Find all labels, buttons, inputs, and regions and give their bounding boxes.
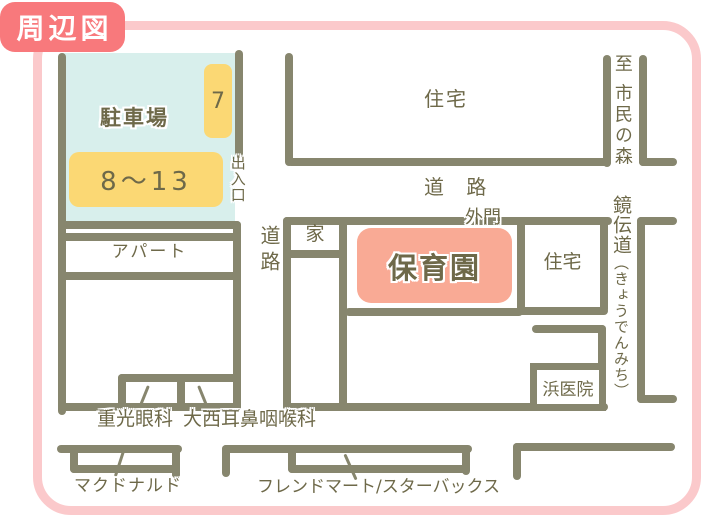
parking-spots-8-13: 8～13 <box>69 152 223 207</box>
road-line <box>517 307 608 315</box>
building-line <box>222 445 472 453</box>
road-line <box>637 395 677 403</box>
parking-label: 駐車場 <box>100 106 169 130</box>
parking-spot-7: 7 <box>204 64 232 138</box>
kyodenmichi-road-label: 鏡伝道（きょうでんみち） <box>610 195 630 399</box>
entrance-exit-label: 出入口 <box>229 155 245 203</box>
to-citizens-forest-label: 至 市民の森 <box>612 54 631 168</box>
road-line <box>285 53 293 166</box>
hama-clinic-label: 浜医院 <box>543 375 594 400</box>
road-line <box>345 308 523 316</box>
road-line <box>58 221 241 229</box>
apartment-label: アパート <box>58 243 241 263</box>
road-line <box>637 217 645 403</box>
building-line <box>118 374 237 382</box>
building-line <box>70 465 180 473</box>
housing-top-label: 住宅 <box>424 88 468 111</box>
neighborhood-map: 周辺図 7 8～13 駐車場 出入口 道路 住宅 道 路 <box>0 0 703 530</box>
road-line <box>532 325 606 333</box>
map-title-badge: 周辺図 <box>0 2 125 52</box>
kyodenmichi-kana: （きょうでんみち） <box>612 255 630 399</box>
road-line <box>235 50 243 158</box>
road-label-left: 道路 <box>258 225 279 277</box>
road-line <box>283 217 291 411</box>
building-line <box>283 250 347 258</box>
building-line <box>58 272 241 280</box>
building-line <box>288 465 470 473</box>
house-label: 家 <box>283 224 347 246</box>
nursery-school-label: 保育園 <box>388 245 481 287</box>
road-line <box>639 55 647 166</box>
road-line <box>603 55 611 167</box>
nursery-school-box: 保育園 <box>357 228 512 303</box>
ent-clinic-label: 大西耳鼻咽喉科 <box>183 409 316 431</box>
road-line <box>513 443 675 451</box>
building-line <box>57 445 182 453</box>
road-line <box>639 158 677 166</box>
road-line <box>637 217 677 225</box>
hama-clinic-box: 浜医院 <box>530 363 606 411</box>
eye-clinic-label: 重光眼科 <box>97 409 173 431</box>
mcdonalds-label: マクドナルド <box>74 477 182 497</box>
road-line <box>287 158 611 166</box>
road-line <box>58 233 241 241</box>
outer-gate-label: 外門 <box>465 208 501 229</box>
housing-right-label: 住宅 <box>517 252 608 274</box>
kyodenmichi-name: 鏡伝道 <box>610 195 632 255</box>
friend-mart-starbucks-label: フレンドマート/スターバックス <box>257 478 500 498</box>
road-label-top: 道 路 <box>424 176 494 199</box>
